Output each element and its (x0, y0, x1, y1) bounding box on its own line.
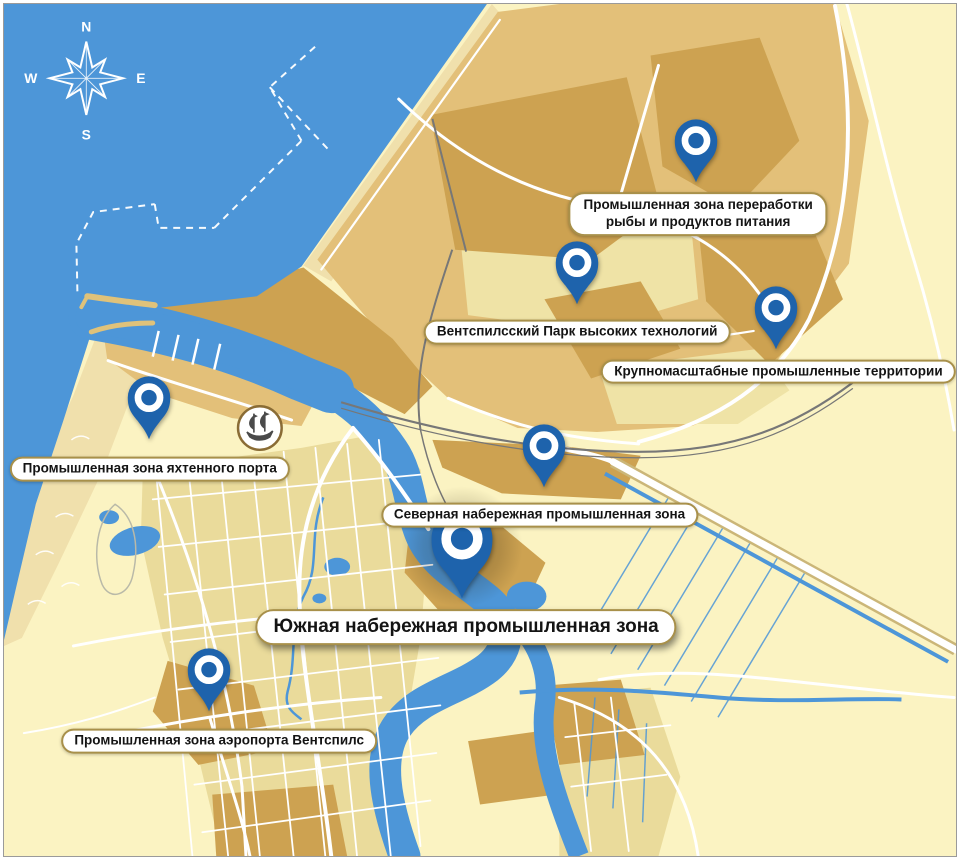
map-pin-label-line: Промышленная зона аэропорта Вентспилс (74, 733, 364, 750)
map-pin-label-large-scale-territories[interactable]: Крупномасштабные промышленные территории (601, 359, 955, 384)
map-pin-yacht-port[interactable] (126, 368, 172, 441)
pins-overlay: Промышленная зона переработкирыбы и прод… (4, 4, 956, 856)
pin-icon (554, 234, 600, 307)
pin-icon (753, 278, 799, 351)
map-pin-high-tech-park[interactable] (554, 234, 600, 307)
map-pin-label-line: Крупномасштабные промышленные территории (614, 363, 942, 380)
pin-icon (186, 641, 232, 714)
map-pin-label-line: Промышленная зона переработки (584, 197, 813, 214)
pin-icon (673, 112, 719, 185)
map-pin-north-embankment[interactable] (521, 417, 567, 490)
pin-icon (126, 368, 172, 441)
map-pin-label-south-embankment[interactable]: Южная набережная промышленная зона (255, 609, 676, 645)
map-pin-label-line: Вентспилсский Парк высоких технологий (437, 323, 718, 340)
map-pin-label-line: Южная набережная промышленная зона (273, 615, 658, 639)
map-pin-label-airport[interactable]: Промышленная зона аэропорта Вентспилс (61, 729, 377, 754)
map-pin-label-line: рыбы и продуктов питания (584, 214, 813, 231)
map-pin-airport[interactable] (186, 641, 232, 714)
map-pin-label-yacht-port[interactable]: Промышленная зона яхтенного порта (10, 456, 290, 481)
map-pin-label-north-embankment[interactable]: Северная набережная промышленная зона (381, 503, 698, 528)
pin-icon (521, 417, 567, 490)
map-pin-label-line: Промышленная зона яхтенного порта (23, 460, 277, 477)
map-pin-label-high-tech-park[interactable]: Вентспилсский Парк высоких технологий (424, 319, 731, 344)
map-pin-large-scale-territories[interactable] (753, 278, 799, 351)
map-pin-label-fish-processing[interactable]: Промышленная зона переработкирыбы и прод… (569, 192, 828, 236)
map-pin-fish-processing[interactable] (673, 112, 719, 185)
map: N E S W Промышленная зона переработкирыб… (3, 3, 957, 857)
map-pin-label-line: Северная набережная промышленная зона (394, 507, 685, 524)
